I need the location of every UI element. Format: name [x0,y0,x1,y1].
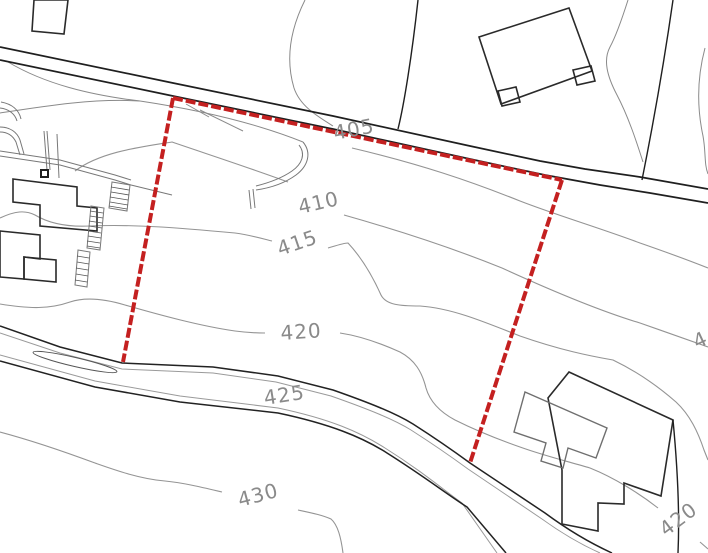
track-edge-south [0,361,506,553]
garden-line [699,48,708,174]
contour-410-line-east [344,215,708,347]
contour-label-430: 430 [235,478,281,512]
contour-label-425: 425 [262,380,306,410]
garden-line [0,100,140,113]
contour-label-410: 410 [296,186,342,219]
track-island [32,348,118,376]
building-northeast-notch [573,66,595,85]
fence-mid [398,0,418,129]
contour-label-415: 415 [274,225,321,261]
building-west-wing [0,231,40,279]
fence-east [642,0,673,180]
building-northwest [32,0,68,34]
contour-410-line-west [75,142,288,182]
building-northeast [479,8,592,104]
contour-420-line-corner [700,542,708,549]
garden-boundaries [0,0,708,174]
contour-label-420: 420 [280,318,323,345]
contour-430-line-west [0,432,222,492]
steps-upper [109,182,130,211]
site-plan-canvas[interactable]: 4054104154204254304204 [0,0,708,553]
plot-boundary-west [123,98,173,362]
plot-boundary-north [173,98,562,180]
garden-line [8,62,140,101]
building-southeast-annex [514,392,607,468]
lower-track [0,326,612,553]
building-northeast-notch2 [498,87,520,106]
buildings [32,0,679,553]
plot-boundary [123,98,562,463]
contour-label-edge-partial: 4 [689,326,708,354]
garden-line [606,0,643,162]
site-plan-svg: 4054104154204254304204 [0,0,708,553]
track-edge-north [0,326,612,553]
building-west-wing2 [24,257,56,282]
steps-main [87,206,104,250]
track-kerb-south [0,355,497,553]
steps-lower [75,250,90,287]
contour-430-line-east [298,510,343,553]
garden-line [290,0,333,126]
gate-post-marker [41,170,48,177]
contour-labels: 4054104154204254304204 [235,113,708,541]
contour-lines [0,142,708,553]
contour-405-line [352,148,708,268]
